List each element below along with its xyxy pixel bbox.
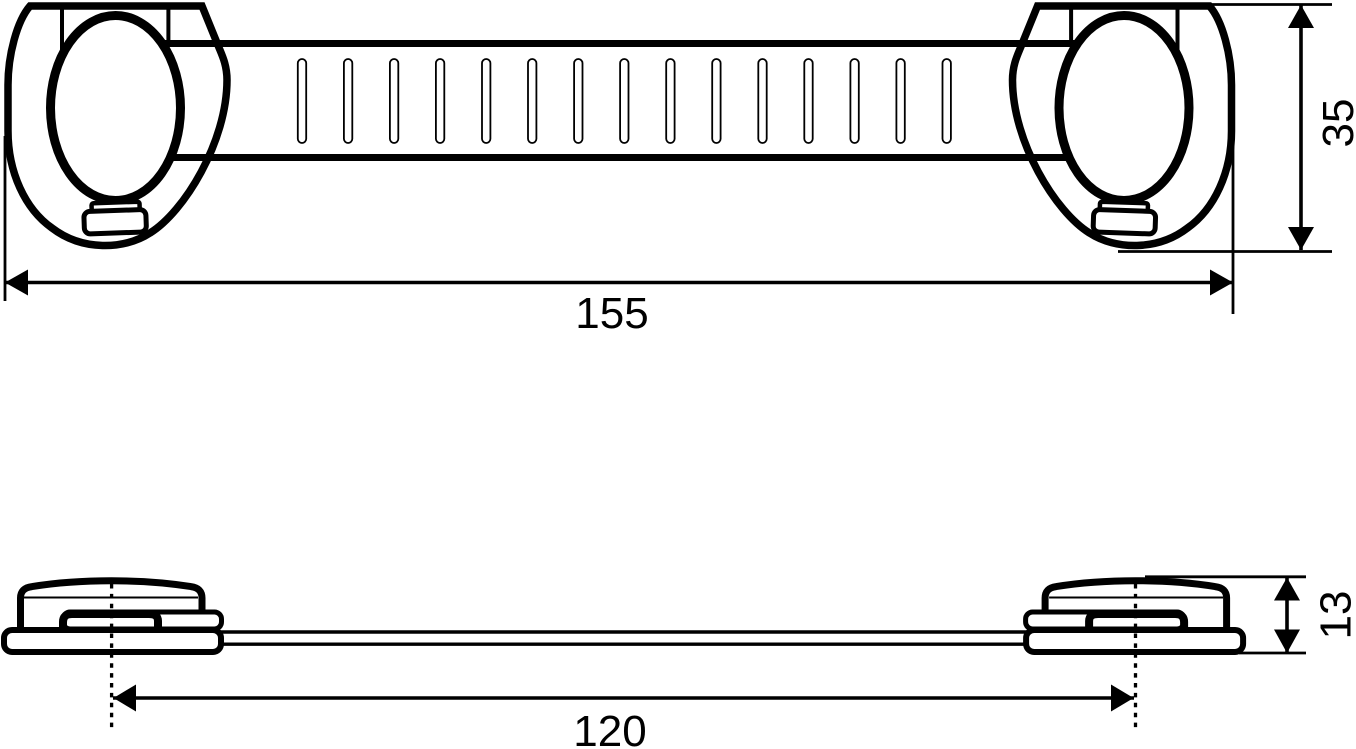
svg-text:155: 155 [575,289,648,338]
svg-text:13: 13 [1312,591,1356,640]
svg-text:35: 35 [1314,99,1356,148]
svg-text:120: 120 [573,707,646,749]
